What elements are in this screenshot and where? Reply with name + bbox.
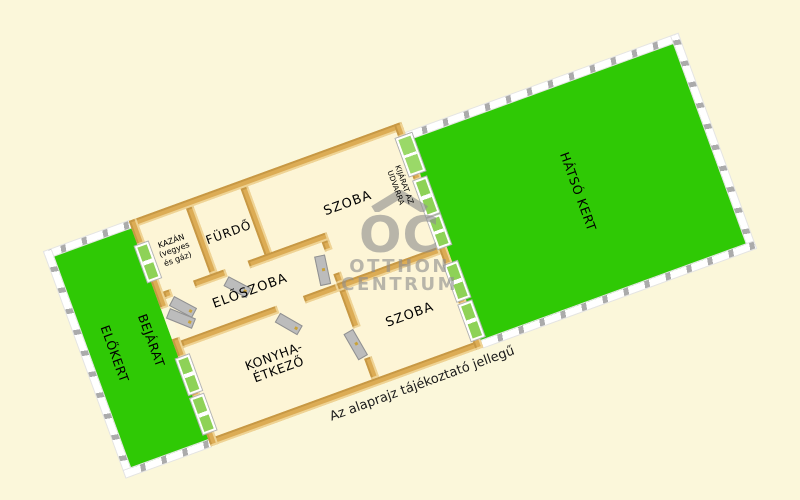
floor-plan: ELŐKERT BEJÁRAT xyxy=(44,23,756,478)
floor-plan-canvas: ELŐKERT BEJÁRAT xyxy=(0,0,800,500)
watermark-initials: OC xyxy=(359,212,440,258)
